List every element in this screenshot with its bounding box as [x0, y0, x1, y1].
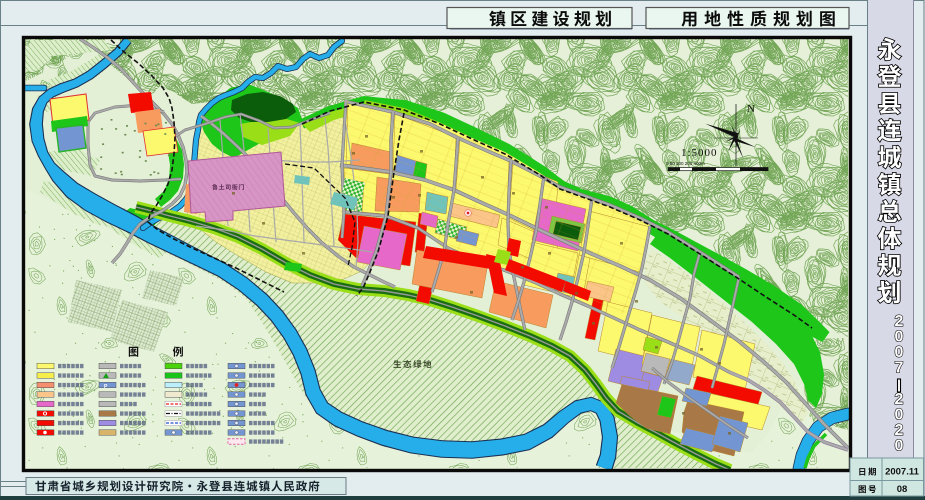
- svg-text:2: 2: [895, 391, 904, 408]
- svg-text:0: 0: [895, 344, 904, 361]
- svg-text:1:5000: 1:5000: [681, 147, 718, 159]
- svg-text:08: 08: [897, 484, 908, 495]
- svg-text:2007.11: 2007.11: [885, 467, 920, 478]
- svg-text:0: 0: [895, 438, 904, 455]
- svg-text:7: 7: [895, 360, 904, 377]
- svg-text:2: 2: [895, 313, 904, 330]
- svg-text:0 50 100 200: 0 50 100 200 400m: [666, 161, 705, 166]
- svg-text:0: 0: [895, 329, 904, 346]
- svg-text:2: 2: [895, 422, 904, 439]
- svg-text:N: N: [747, 103, 755, 115]
- svg-text:0: 0: [895, 407, 904, 424]
